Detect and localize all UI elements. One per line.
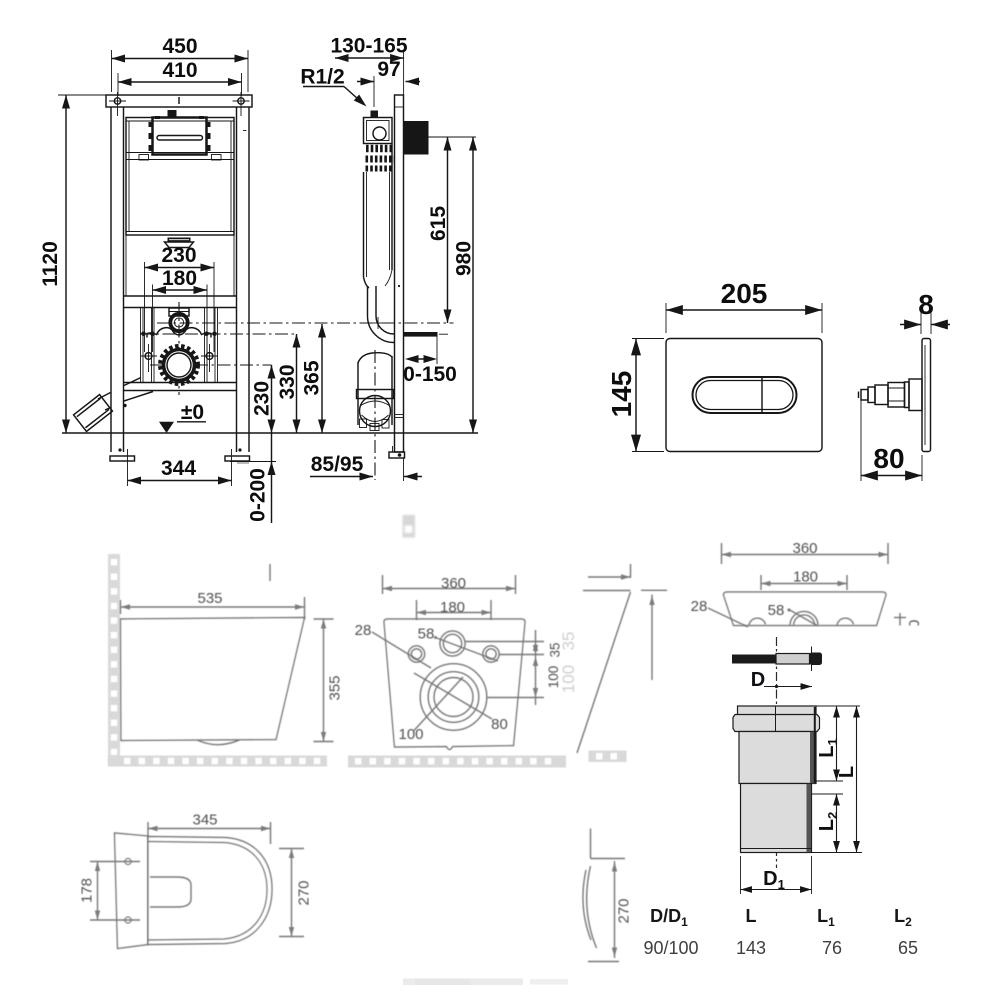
svg-text:90/100: 90/100 xyxy=(643,938,698,958)
svg-text:85/95: 85/95 xyxy=(311,453,364,476)
svg-text:143: 143 xyxy=(736,938,766,958)
svg-text:980: 980 xyxy=(453,241,476,276)
svg-text:D1: D1 xyxy=(763,868,785,892)
svg-text:28: 28 xyxy=(355,622,372,639)
svg-text:180: 180 xyxy=(793,569,818,586)
svg-text:535: 535 xyxy=(197,590,222,607)
svg-text:R1/2: R1/2 xyxy=(300,66,344,89)
svg-text:145: 145 xyxy=(606,371,637,418)
svg-text:58: 58 xyxy=(768,602,785,619)
svg-text:L: L xyxy=(836,766,858,778)
svg-text:D/D1: D/D1 xyxy=(650,906,688,929)
svg-text:35: 35 xyxy=(559,632,578,651)
svg-text:180: 180 xyxy=(440,599,465,616)
svg-text:344: 344 xyxy=(161,457,196,480)
svg-text:L2: L2 xyxy=(894,906,912,929)
svg-text:180: 180 xyxy=(162,267,197,290)
svg-text:0-200: 0-200 xyxy=(247,468,270,522)
svg-text:L2: L2 xyxy=(816,812,840,831)
svg-text:330: 330 xyxy=(276,364,299,399)
svg-text:230: 230 xyxy=(161,244,196,267)
svg-text:28: 28 xyxy=(691,598,708,615)
svg-text:±0: ±0 xyxy=(181,401,204,424)
svg-text:L1: L1 xyxy=(817,906,835,929)
svg-text:100: 100 xyxy=(398,726,423,743)
svg-text:360: 360 xyxy=(441,575,466,592)
svg-text:130-165: 130-165 xyxy=(330,35,407,58)
svg-text:L: L xyxy=(746,906,757,926)
svg-text:178: 178 xyxy=(79,878,96,903)
svg-text:365: 365 xyxy=(301,360,324,395)
svg-text:80: 80 xyxy=(491,716,508,733)
svg-text:270: 270 xyxy=(616,898,633,923)
svg-text:8: 8 xyxy=(918,289,934,320)
svg-text:0-150: 0-150 xyxy=(403,363,457,386)
svg-text:58: 58 xyxy=(418,626,435,643)
svg-text:97: 97 xyxy=(377,58,400,81)
svg-text:80: 80 xyxy=(873,443,904,474)
svg-text:270: 270 xyxy=(296,880,313,905)
svg-text:76: 76 xyxy=(822,938,842,958)
svg-text:100: 100 xyxy=(559,665,578,693)
svg-text:360: 360 xyxy=(792,540,817,557)
svg-text:40: 40 xyxy=(906,620,923,637)
svg-text:410: 410 xyxy=(162,59,197,82)
svg-text:450: 450 xyxy=(162,35,197,58)
svg-text:345: 345 xyxy=(192,812,217,829)
svg-text:65: 65 xyxy=(898,938,918,958)
svg-text:1120: 1120 xyxy=(39,241,62,287)
svg-text:205: 205 xyxy=(721,278,768,309)
svg-text:L1: L1 xyxy=(816,738,840,757)
svg-text:355: 355 xyxy=(327,675,344,700)
svg-text:230: 230 xyxy=(251,381,274,416)
svg-text:D: D xyxy=(751,669,765,691)
svg-text:615: 615 xyxy=(427,206,450,241)
